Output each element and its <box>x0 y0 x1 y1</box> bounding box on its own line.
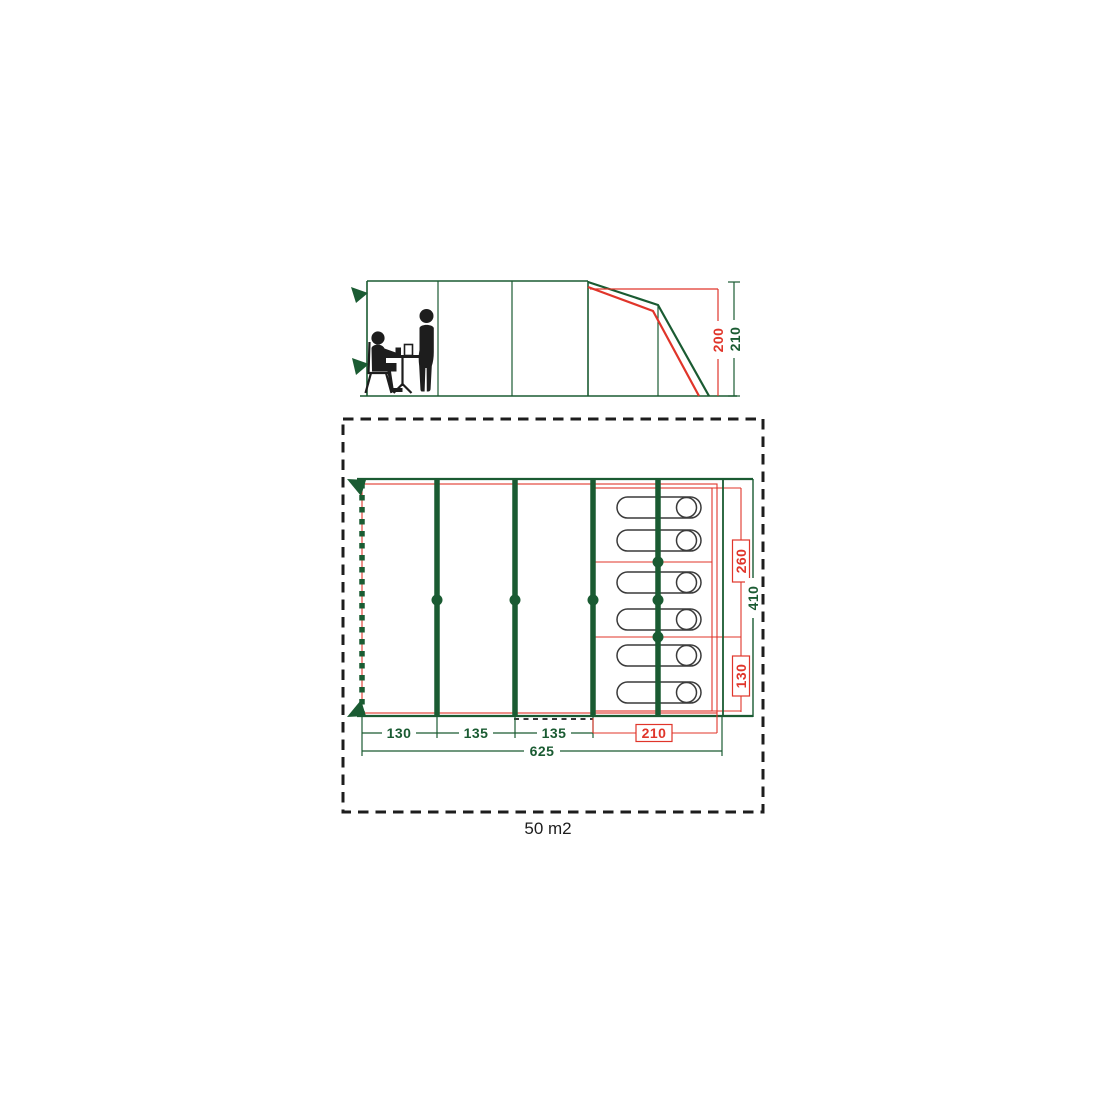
dim-label-410: 410 <box>745 586 761 611</box>
dim-box-260: 260 <box>733 540 750 582</box>
dim-label-410-group: 410 <box>745 578 761 618</box>
pole-joint <box>588 595 599 606</box>
pole-joint <box>653 632 664 643</box>
right-dimensions: 260 130 410 <box>733 479 762 717</box>
standing-person-icon <box>420 309 434 323</box>
elevation-dimensions: 200 210 <box>590 282 743 396</box>
dim-label-210: 210 <box>727 320 743 358</box>
dim-label-260: 260 <box>733 549 749 574</box>
guy-peg-icon <box>347 479 366 496</box>
standing-person-icon <box>419 325 434 392</box>
people-silhouettes <box>366 309 434 393</box>
dim-label-135: 135 <box>464 725 489 741</box>
dim-label-625: 625 <box>530 743 555 759</box>
svg-text:210: 210 <box>727 327 743 352</box>
dim-box-130: 130 <box>733 656 750 696</box>
tent-diagram-canvas: 200 210 <box>0 0 1100 1100</box>
pole-joint <box>653 557 664 568</box>
dim-label-200: 200 <box>710 321 726 359</box>
floor-plan: 130 135 135 210 625 260 13 <box>343 419 763 838</box>
pole-joint <box>510 595 521 606</box>
elevation-view: 200 210 <box>351 281 743 396</box>
bottom-dimensions: 130 135 135 210 625 <box>362 712 722 759</box>
dim-label-210: 210 <box>642 725 667 741</box>
svg-text:200: 200 <box>710 328 726 353</box>
tent-diagram: 200 210 <box>0 0 1100 1100</box>
elevation-roof-slope-inner <box>588 287 699 396</box>
pole-joint <box>432 595 443 606</box>
area-label: 50 m2 <box>524 819 571 838</box>
cup-icon <box>396 348 402 356</box>
cup-icon <box>405 345 413 356</box>
pole-joint <box>653 595 664 606</box>
dim-label-135: 135 <box>542 725 567 741</box>
seated-person-icon <box>371 331 384 344</box>
guy-peg-icon <box>351 287 368 303</box>
dim-label-130: 130 <box>387 725 412 741</box>
dim-label-130-right: 130 <box>733 664 749 689</box>
